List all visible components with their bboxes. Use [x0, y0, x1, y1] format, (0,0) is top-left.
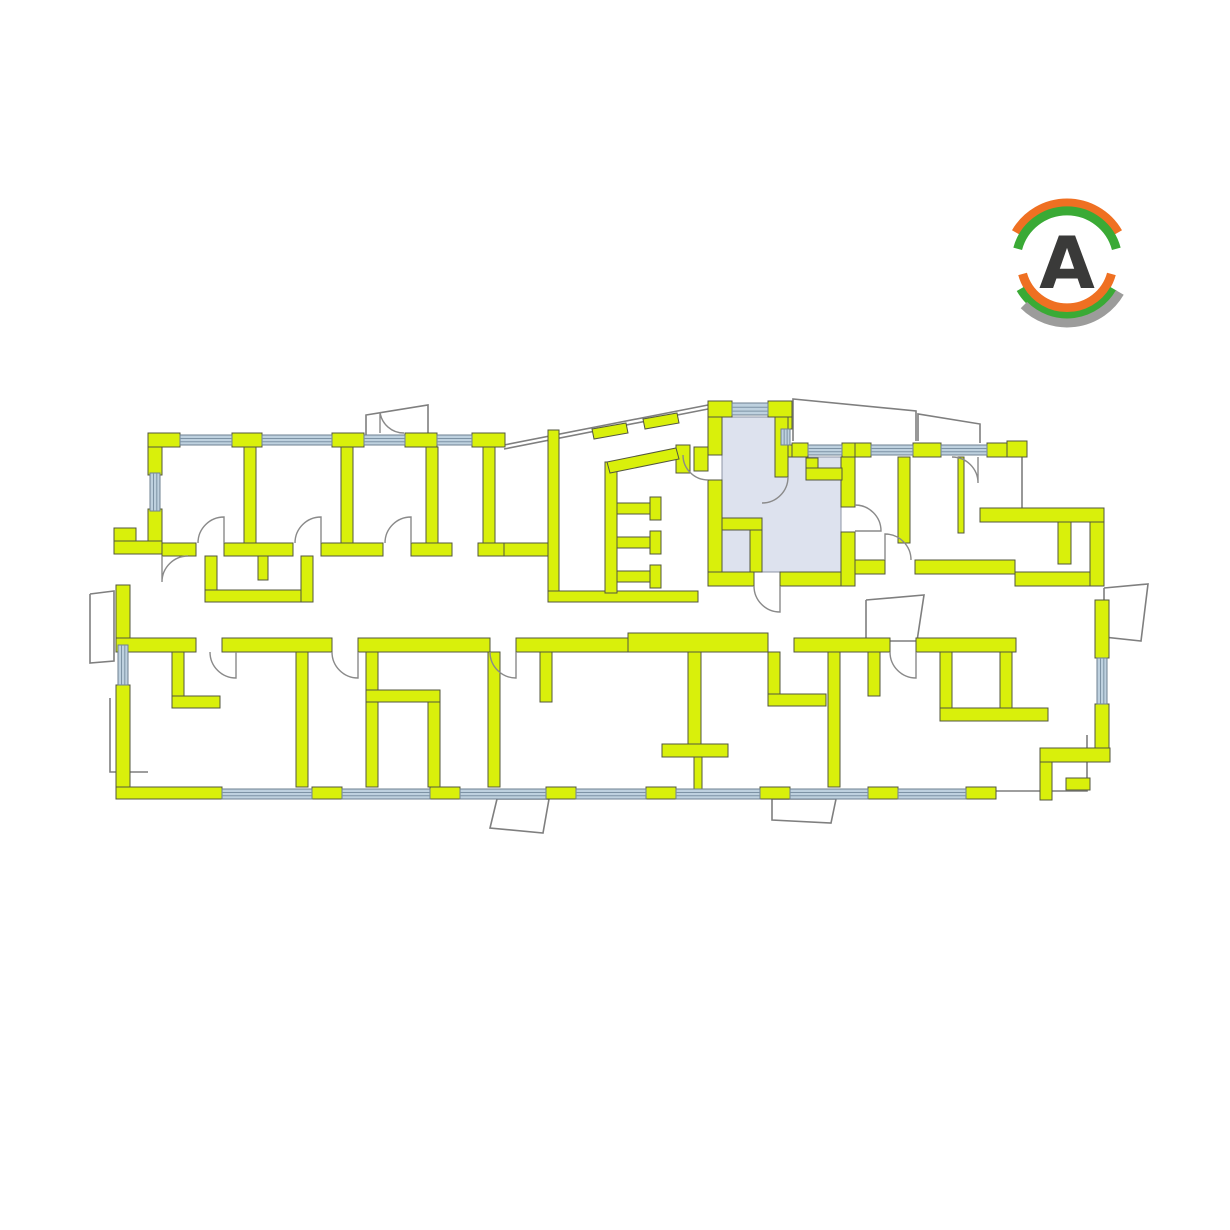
wall-segment: [116, 685, 130, 799]
door-swing: [952, 457, 978, 483]
window: [150, 473, 160, 511]
wall-segment: [708, 401, 732, 417]
wall-segment: [301, 556, 313, 602]
window: [222, 789, 312, 799]
window: [342, 789, 430, 799]
window: [790, 789, 868, 799]
wall-segment: [842, 443, 856, 457]
window: [576, 789, 646, 799]
wall-segment: [650, 531, 661, 554]
window: [781, 429, 790, 445]
door-swing: [332, 652, 358, 678]
window: [460, 789, 546, 799]
wall-segment: [915, 560, 1015, 574]
wall-segment: [1040, 748, 1110, 762]
wall-segment: [794, 638, 890, 652]
door-swing: [198, 517, 224, 543]
wall-segment: [172, 696, 220, 708]
wall-segment: [428, 702, 440, 787]
window: [941, 445, 987, 455]
wall-segment: [898, 457, 910, 543]
wall-segment: [868, 787, 898, 799]
wall-segment: [411, 543, 452, 556]
wall-segment: [841, 532, 855, 586]
wall-segment: [540, 652, 552, 702]
wall-segment: [232, 433, 262, 447]
balcony-outline: [1104, 584, 1148, 641]
wall-segment: [224, 543, 293, 556]
wall-segment: [341, 447, 353, 543]
wall-segment: [516, 638, 628, 652]
wall-segment: [643, 413, 679, 429]
wall-segment: [708, 417, 722, 455]
balcony-outline: [90, 591, 114, 663]
wall-segment: [116, 585, 130, 645]
door-swing: [162, 556, 188, 582]
wall-segment: [548, 430, 559, 602]
wall-segment: [662, 744, 728, 757]
wall-segment: [548, 591, 698, 602]
balcony-outline: [793, 399, 916, 441]
wall-segment: [405, 433, 437, 447]
door-swing: [754, 586, 780, 612]
wall-segment: [478, 543, 504, 556]
wall-segment: [116, 787, 222, 799]
wall-segment: [162, 543, 196, 556]
balcony-outline: [918, 414, 980, 443]
wall-segment: [1090, 522, 1104, 586]
door-swing: [210, 652, 236, 678]
window: [1097, 658, 1107, 704]
wall-segment: [312, 787, 342, 799]
wall-segment: [546, 787, 576, 799]
wall-segment: [708, 572, 754, 586]
floorplan-canvas: A: [0, 0, 1230, 1230]
door-swing: [890, 652, 916, 678]
logo-letter: A: [1039, 221, 1095, 305]
wall-segment: [646, 787, 676, 799]
wall-segment: [916, 638, 1016, 652]
wall-segment: [148, 433, 180, 447]
section-logo-badge: A: [1016, 203, 1120, 323]
wall-segment: [605, 462, 617, 593]
wall-segment: [607, 448, 679, 473]
wall-segment: [650, 497, 661, 520]
wall-segment: [1058, 522, 1071, 564]
wall-segment: [358, 638, 490, 652]
wall-segment: [1095, 600, 1109, 658]
wall-segment: [205, 590, 313, 602]
wall-segment: [426, 447, 438, 543]
wall-segment: [940, 708, 1048, 721]
wall-segment: [768, 694, 826, 706]
wall-segment: [775, 417, 788, 477]
wall-segment: [688, 652, 701, 756]
facade-line: [504, 405, 708, 445]
window: [364, 435, 405, 445]
wall-segment: [841, 457, 855, 507]
wall-segment: [366, 652, 378, 787]
door-swing: [385, 517, 411, 543]
wall-segment: [114, 528, 136, 541]
wall-segment: [650, 565, 661, 588]
wall-segment: [1066, 778, 1090, 790]
wall-segment: [750, 530, 762, 572]
wall-segment: [694, 447, 708, 471]
wall-segment: [694, 757, 702, 789]
wall-segment: [868, 652, 880, 696]
window: [871, 445, 913, 455]
floorplan-page: A: [0, 0, 1230, 1230]
wall-segment: [244, 447, 256, 543]
wall-segment: [430, 787, 460, 799]
window: [437, 435, 472, 445]
wall-segment: [722, 518, 762, 530]
window: [118, 645, 128, 685]
window: [180, 435, 232, 445]
balcony-outline: [866, 595, 924, 641]
door-swing: [855, 505, 881, 531]
door-swing: [295, 517, 321, 543]
wall-segment: [483, 447, 495, 543]
wall-segment: [114, 541, 162, 554]
walls-layer: [114, 401, 1110, 800]
wall-segment: [488, 652, 500, 787]
wall-segment: [504, 543, 548, 556]
window: [808, 445, 842, 455]
wall-segment: [258, 556, 268, 580]
wall-segment: [628, 633, 768, 652]
wall-segment: [806, 468, 842, 480]
wall-segment: [792, 443, 808, 457]
wall-segment: [958, 457, 964, 533]
wall-segment: [148, 509, 162, 541]
wall-segment: [966, 787, 996, 799]
door-swing: [380, 412, 404, 433]
wall-segment: [768, 401, 792, 417]
wall-segment: [296, 652, 308, 787]
balcony-outline: [490, 799, 549, 833]
window: [732, 403, 768, 415]
wall-segment: [913, 443, 941, 457]
balcony-outline: [772, 799, 836, 823]
wall-segment: [1040, 762, 1052, 800]
wall-segment: [1000, 652, 1012, 708]
wall-segment: [828, 652, 840, 787]
window: [898, 789, 966, 799]
wall-segment: [366, 690, 440, 702]
wall-segment: [855, 560, 885, 574]
wall-segment: [855, 443, 871, 457]
wall-segment: [321, 543, 383, 556]
wall-segment: [148, 447, 162, 475]
wall-segment: [472, 433, 505, 447]
window: [676, 789, 760, 799]
wall-segment: [332, 433, 364, 447]
wall-segment: [1007, 441, 1027, 457]
wall-segment: [708, 480, 722, 572]
wall-segment: [592, 423, 628, 439]
wall-segment: [760, 787, 790, 799]
wall-segment: [222, 638, 332, 652]
wall-segment: [1015, 572, 1095, 586]
wall-segment: [980, 508, 1104, 522]
window: [262, 435, 332, 445]
